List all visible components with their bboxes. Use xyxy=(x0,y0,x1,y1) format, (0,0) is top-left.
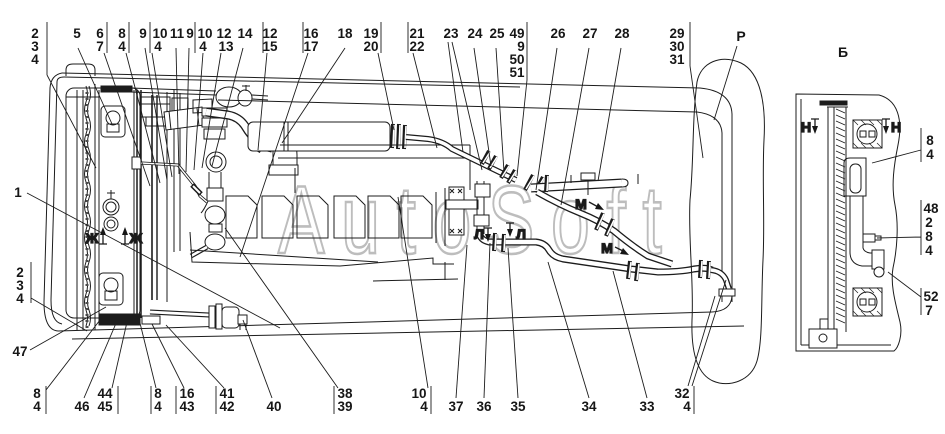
svg-text:31: 31 xyxy=(669,52,685,67)
svg-text:7: 7 xyxy=(925,303,933,318)
svg-text:33: 33 xyxy=(639,399,655,414)
svg-text:11: 11 xyxy=(170,26,185,41)
svg-text:4: 4 xyxy=(16,291,24,306)
svg-text:1: 1 xyxy=(14,185,22,200)
svg-text:39: 39 xyxy=(337,399,352,414)
svg-text:43: 43 xyxy=(179,399,195,414)
svg-text:4: 4 xyxy=(926,147,934,162)
svg-text:Р: Р xyxy=(736,28,745,44)
svg-text:5: 5 xyxy=(73,26,81,41)
svg-text:9: 9 xyxy=(186,26,194,41)
svg-text:Л: Л xyxy=(516,226,526,242)
svg-text:М: М xyxy=(575,196,587,212)
svg-text:4: 4 xyxy=(683,399,691,414)
svg-text:Ж: Ж xyxy=(129,230,143,246)
svg-text:46: 46 xyxy=(74,399,90,414)
svg-text:14: 14 xyxy=(237,26,253,41)
svg-text:40: 40 xyxy=(266,399,281,414)
svg-text:Н: Н xyxy=(891,119,901,135)
svg-text:4: 4 xyxy=(33,399,41,414)
svg-text:4: 4 xyxy=(925,243,933,258)
svg-text:4: 4 xyxy=(31,52,39,67)
svg-text:34: 34 xyxy=(581,399,597,414)
svg-text:8: 8 xyxy=(926,133,934,148)
svg-text:36: 36 xyxy=(476,399,492,414)
svg-text:Л: Л xyxy=(474,226,484,242)
svg-text:Б: Б xyxy=(838,44,848,60)
svg-text:28: 28 xyxy=(614,26,630,41)
svg-text:17: 17 xyxy=(303,39,318,54)
svg-text:51: 51 xyxy=(509,65,525,80)
svg-text:35: 35 xyxy=(510,399,526,414)
svg-text:4: 4 xyxy=(199,39,207,54)
svg-text:18: 18 xyxy=(337,26,353,41)
svg-text:13: 13 xyxy=(218,39,234,54)
svg-text:52: 52 xyxy=(923,289,938,304)
svg-text:М: М xyxy=(601,240,613,256)
svg-text:Ж: Ж xyxy=(85,230,99,246)
svg-text:8: 8 xyxy=(925,229,933,244)
svg-text:42: 42 xyxy=(219,399,234,414)
svg-text:47: 47 xyxy=(12,344,27,359)
svg-text:25: 25 xyxy=(489,26,505,41)
svg-text:15: 15 xyxy=(262,39,278,54)
svg-text:48: 48 xyxy=(923,201,939,216)
svg-text:4: 4 xyxy=(154,39,162,54)
svg-text:45: 45 xyxy=(97,399,113,414)
svg-text:4: 4 xyxy=(154,399,162,414)
svg-text:23: 23 xyxy=(443,26,459,41)
svg-text:2: 2 xyxy=(925,215,933,230)
svg-text:26: 26 xyxy=(550,26,566,41)
svg-text:Н: Н xyxy=(801,119,811,135)
svg-text:9: 9 xyxy=(139,26,147,41)
svg-text:4: 4 xyxy=(420,399,428,414)
svg-text:27: 27 xyxy=(582,26,597,41)
svg-text:22: 22 xyxy=(409,39,424,54)
svg-text:4: 4 xyxy=(118,39,126,54)
svg-text:24: 24 xyxy=(467,26,483,41)
svg-text:7: 7 xyxy=(96,39,104,54)
svg-text:37: 37 xyxy=(448,399,463,414)
svg-text:20: 20 xyxy=(363,39,378,54)
